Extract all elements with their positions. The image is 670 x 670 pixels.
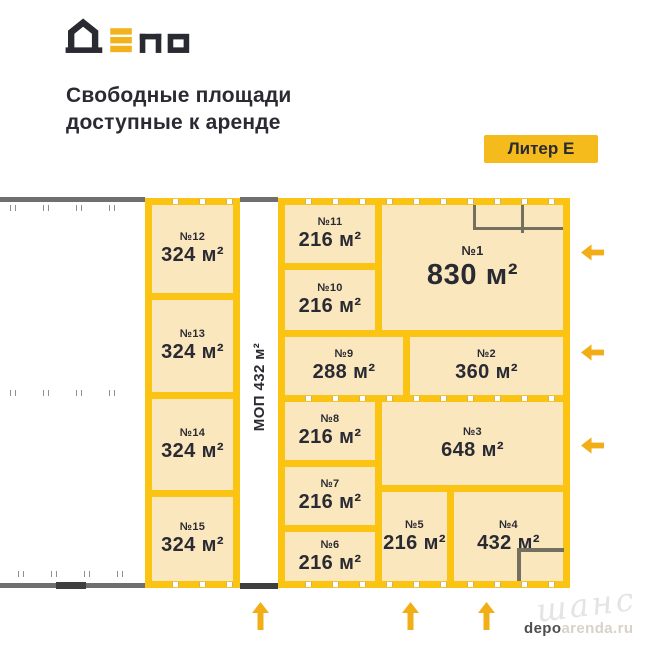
logo-house-icon (64, 16, 190, 58)
unit-15-number: №15 (180, 521, 205, 533)
unit-2-area: 360 м² (455, 361, 518, 384)
unit-11: №11 216 м² (285, 205, 375, 263)
unit-11-number: №11 (318, 216, 343, 228)
unit-6-number: №6 (321, 539, 340, 551)
unit-12-number: №12 (180, 231, 205, 243)
column-row-bottom (18, 571, 148, 577)
unit-12: №12 324 м² (152, 205, 233, 293)
entrance-arrow-bottom-2 (402, 602, 419, 630)
unit-2: №2 360 м² (410, 337, 563, 395)
page-title-line2: доступные к аренде (66, 109, 291, 136)
unit-10-number: №10 (317, 282, 342, 294)
unit-10-area: 216 м² (299, 295, 362, 318)
watermark-site: depoarenda.ru (524, 620, 633, 637)
partition-unit4 (517, 548, 521, 581)
entrance-arrow-bottom-3 (478, 602, 495, 630)
unit-3-area: 648 м² (441, 439, 504, 462)
watermark-site-light: arenda.ru (561, 620, 633, 637)
wall-ticks (152, 199, 233, 204)
door-bottom-left (56, 582, 86, 589)
unit-9-number: №9 (335, 348, 354, 360)
unit-10: №10 216 м² (285, 270, 375, 330)
unit-7-area: 216 м² (299, 491, 362, 514)
wall-ticks (285, 396, 563, 401)
unit-4: №4 432 м² (454, 492, 563, 581)
rental-floorplan-poster: ДЕПО Свободные площади доступные к аренд… (0, 0, 670, 670)
entrance-arrow-bottom-1 (252, 602, 269, 630)
unit-11-area: 216 м² (299, 229, 362, 252)
unit-7: №7 216 м² (285, 467, 375, 525)
column-row-middle (10, 390, 140, 396)
depo-logo: ДЕПО (64, 16, 190, 58)
page-title: Свободные площади доступные к аренде (66, 82, 291, 136)
unit-7-number: №7 (321, 478, 340, 490)
wall-ticks (152, 582, 233, 587)
left-units-block: №12 324 м² №13 324 м² №14 324 м² №15 324… (145, 198, 240, 588)
unit-1-area: 830 м² (427, 259, 518, 292)
unit-2-number: №2 (477, 348, 496, 360)
wall-bottom-corridor (240, 583, 278, 589)
wall-ticks (285, 582, 563, 587)
unit-8-area: 216 м² (299, 426, 362, 449)
unit-5-number: №5 (405, 519, 424, 531)
unit-6: №6 216 м² (285, 532, 375, 581)
unit-15: №15 324 м² (152, 497, 233, 581)
unit-15-area: 324 м² (161, 534, 224, 557)
unit-1-number: №1 (461, 243, 483, 258)
watermark-site-dark: depo (524, 620, 561, 637)
unit-8-number: №8 (321, 413, 340, 425)
unit-13-number: №13 (180, 328, 205, 340)
unit-14-number: №14 (180, 427, 205, 439)
wall-top-corridor (240, 197, 278, 202)
unit-6-area: 216 м² (299, 552, 362, 575)
unit-13: №13 324 м² (152, 300, 233, 392)
unit-8: №8 216 м² (285, 402, 375, 460)
entrance-arrow-right-2 (581, 344, 604, 361)
wall-top-left (0, 197, 145, 202)
liter-badge: Литер Е (484, 135, 598, 163)
entrance-arrow-right-1 (581, 244, 604, 261)
unit-13-area: 324 м² (161, 341, 224, 364)
column-row-top (10, 205, 140, 211)
wall-ticks (285, 199, 563, 204)
unit-3: №3 648 м² (382, 402, 563, 485)
partition-unit1 (473, 227, 563, 230)
right-units-block: №11 216 м² №10 216 м² №9 288 м² №8 216 м… (278, 198, 570, 588)
unit-14-area: 324 м² (161, 440, 224, 463)
page-title-line1: Свободные площади (66, 82, 291, 109)
entrance-arrow-right-3 (581, 437, 604, 454)
unit-5-area: 216 м² (383, 532, 446, 555)
partition-unit4 (517, 548, 564, 552)
unit-3-number: №3 (463, 426, 482, 438)
unit-12-area: 324 м² (161, 244, 224, 267)
unit-5: №5 216 м² (382, 492, 447, 581)
corridor-label: МОП 432 м² (248, 327, 270, 447)
unit-14: №14 324 м² (152, 399, 233, 490)
unit-9-area: 288 м² (313, 361, 376, 384)
unit-4-number: №4 (499, 519, 518, 531)
unit-9: №9 288 м² (285, 337, 403, 395)
